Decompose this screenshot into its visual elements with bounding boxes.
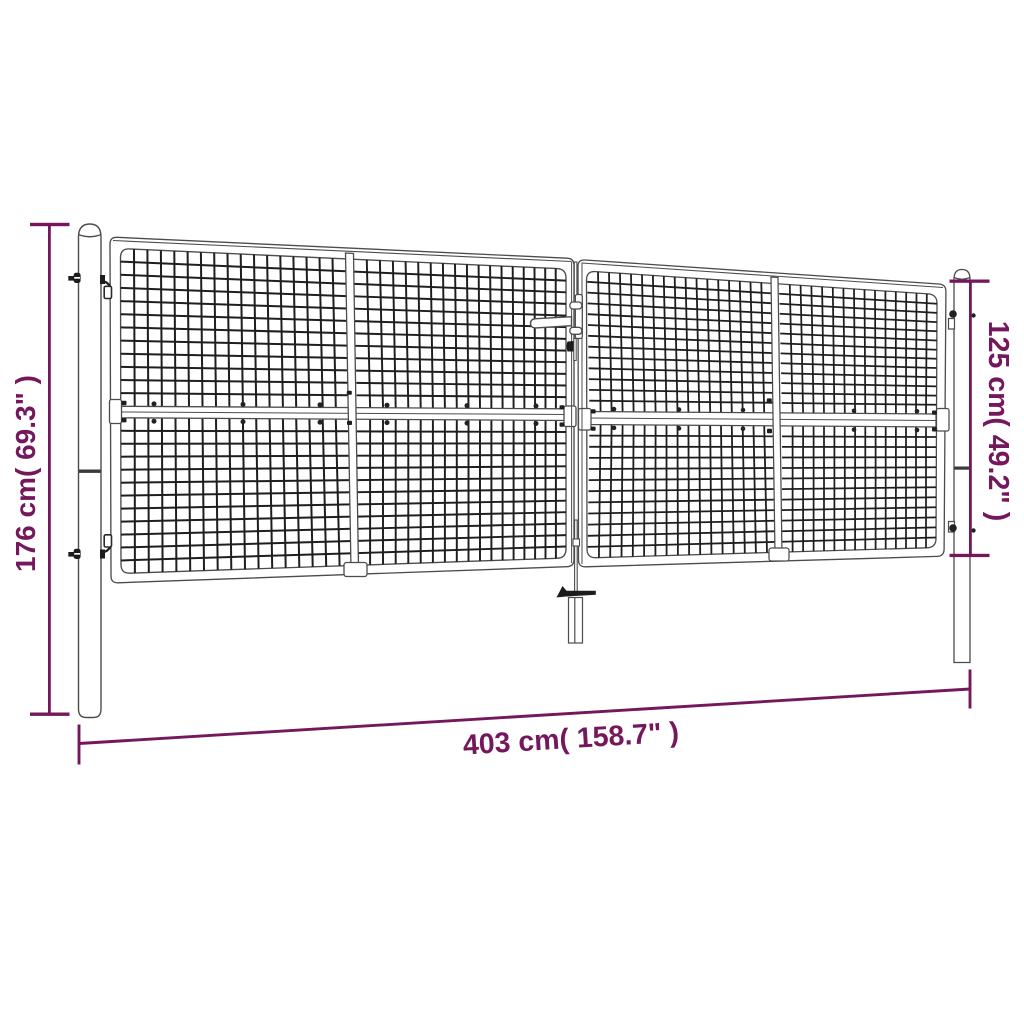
svg-text:176 cm( 69.3" ): 176 cm( 69.3" ) (10, 375, 41, 572)
svg-text:125 cm( 49.2" ): 125 cm( 49.2" ) (982, 321, 1014, 521)
